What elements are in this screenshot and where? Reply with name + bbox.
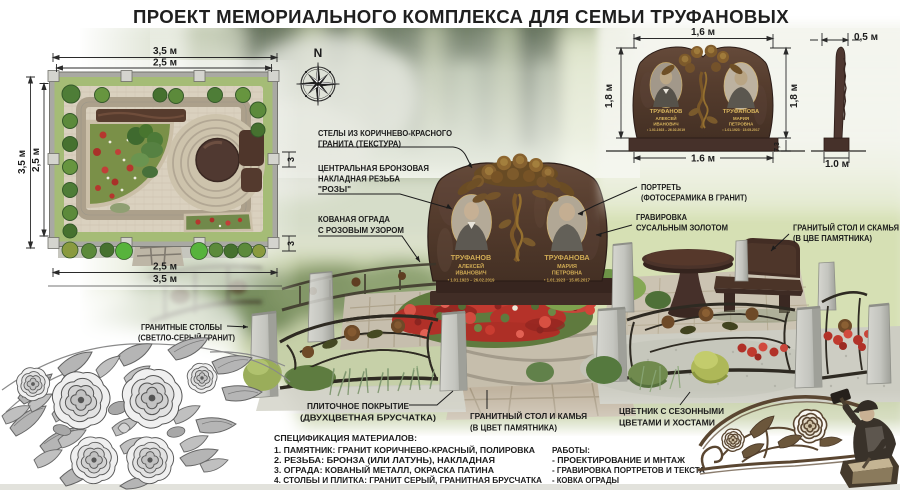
svg-text:ЦВЕТАМИ И ХОСТАМИ: ЦВЕТАМИ И ХОСТАМИ <box>619 418 715 428</box>
svg-text:СТЕЛЫ ИЗ КОРИЧНЕВО-КРАСНОГО: СТЕЛЫ ИЗ КОРИЧНЕВО-КРАСНОГО <box>318 128 452 138</box>
svg-text:3,5 м: 3,5 м <box>17 150 28 174</box>
svg-text:ГРАНИТА (ТЕКСТУРА): ГРАНИТА (ТЕКСТУРА) <box>318 139 401 149</box>
svg-text:- ГРАВИРОВКА ПОРТРЕТОВ И ТЕКСТ: - ГРАВИРОВКА ПОРТРЕТОВ И ТЕКСТА <box>552 465 705 475</box>
svg-text:3,5 м: 3,5 м <box>153 274 177 285</box>
svg-text:3: 3 <box>286 241 296 246</box>
svg-text:1.0 м: 1.0 м <box>825 159 849 170</box>
svg-text:(ДВУХЦВЕТНАЯ БРУСЧАТКА): (ДВУХЦВЕТНАЯ БРУСЧАТКА) <box>300 413 436 423</box>
svg-text:• 1.01.1923 – 26.02.2019: • 1.01.1923 – 26.02.2019 <box>647 128 685 132</box>
svg-text:- ПРОЕКТИРОВАНИЕ И МНТАЖ: - ПРОЕКТИРОВАНИЕ И МНТАЖ <box>552 455 685 465</box>
svg-text:ТРУФАНОВ: ТРУФАНОВ <box>650 109 683 115</box>
svg-text:- КОВКА ОГРАДЫ: - КОВКА ОГРАДЫ <box>552 475 619 485</box>
svg-text:СУСАЛЬНЫМ ЗОЛОТОМ: СУСАЛЬНЫМ ЗОЛОТОМ <box>636 223 728 233</box>
svg-text:• 1.01.1923 · 15.05.2017: • 1.01.1923 · 15.05.2017 <box>722 128 759 132</box>
svg-text:ТРУФАНОВА: ТРУФАНОВА <box>544 253 589 262</box>
svg-text:С РОЗОВЫМ УЗОРОМ: С РОЗОВЫМ УЗОРОМ <box>318 225 404 235</box>
svg-text:РАБОТЫ:: РАБОТЫ: <box>552 445 590 455</box>
svg-text:НАКЛАДНАЯ РЕЗЬБА: НАКЛАДНАЯ РЕЗЬБА <box>318 174 400 184</box>
svg-text:ПЕТРОВНА: ПЕТРОВНА <box>729 122 754 127</box>
svg-text:СПЕЦИФИКАЦИЯ МАТЕРИАЛОВ:: СПЕЦИФИКАЦИЯ МАТЕРИАЛОВ: <box>274 433 417 443</box>
svg-text:3. ОГРАДА: КОВАНЫЙ МЕТАЛЛ, ОКР: 3. ОГРАДА: КОВАНЫЙ МЕТАЛЛ, ОКРАСКА ПАТИН… <box>274 464 494 475</box>
svg-text:ПРОЕКТ МЕМОРИАЛЬНОГО КОМПЛЕКСА: ПРОЕКТ МЕМОРИАЛЬНОГО КОМПЛЕКСА ДЛЯ СЕМЬИ… <box>133 6 789 27</box>
svg-text:ГРАНИТНЫЕ СТОЛБЫ: ГРАНИТНЫЕ СТОЛБЫ <box>141 322 222 332</box>
svg-text:ЦВЕТНИК С СЕЗОННЫМИ: ЦВЕТНИК С СЕЗОННЫМИ <box>619 406 724 416</box>
svg-text:0,5 м: 0,5 м <box>854 32 878 43</box>
svg-text:2,5 м: 2,5 м <box>153 58 177 69</box>
svg-text:ИВАНОВИЧ: ИВАНОВИЧ <box>455 271 486 277</box>
svg-text:2,5 м: 2,5 м <box>153 262 177 273</box>
svg-text:(В ЦВЕ ПАМЯТНИКА): (В ЦВЕ ПАМЯТНИКА) <box>793 233 872 243</box>
svg-text:• 1.01.1923 · 15.05.2017: • 1.01.1923 · 15.05.2017 <box>544 278 591 283</box>
svg-text:7,3: 7,3 <box>774 142 781 152</box>
svg-text:1.6 м: 1.6 м <box>691 154 715 165</box>
svg-text:ПЕТРОВНА: ПЕТРОВНА <box>552 271 582 277</box>
svg-text:ГРАВИРОВКА: ГРАВИРОВКА <box>636 212 687 222</box>
svg-text:ПОРТРЕТЬ: ПОРТРЕТЬ <box>641 182 681 192</box>
svg-text:ИВАНОВИЧ: ИВАНОВИЧ <box>653 122 678 127</box>
svg-text:1. ПАМЯТНИК: ГРАНИТ КОРИЧНЕВО-: 1. ПАМЯТНИК: ГРАНИТ КОРИЧНЕВО-КРАСНЫЙ, П… <box>274 444 535 455</box>
svg-text:МАРИЯ: МАРИЯ <box>733 116 749 121</box>
svg-text:АЛЕКСЕЙ: АЛЕКСЕЙ <box>458 262 484 270</box>
svg-text:ГРАНИТЫЙ СТОЛ И СКАМЬЯ: ГРАНИТЫЙ СТОЛ И СКАМЬЯ <box>793 222 899 233</box>
svg-text:4. СТОЛБЫ И ПЛИТКА: ГРАНИТ СЕР: 4. СТОЛБЫ И ПЛИТКА: ГРАНИТ СЕРЫЙ, ГРАНИТ… <box>274 474 542 485</box>
svg-text:2,5 м: 2,5 м <box>31 148 42 172</box>
svg-text:1,8 м: 1,8 м <box>604 84 615 108</box>
svg-text:"РОЗЫ": "РОЗЫ" <box>318 184 351 194</box>
svg-text:1,8 м: 1,8 м <box>789 84 800 108</box>
svg-text:3: 3 <box>286 157 296 162</box>
svg-text:КОВАНАЯ ОГРАДА: КОВАНАЯ ОГРАДА <box>318 214 390 224</box>
svg-text:ТРУФАНОВА: ТРУФАНОВА <box>723 109 760 115</box>
svg-text:2. РЕЗЬБА: БРОНЗА (ИЛИ ЛАТУНЬ): 2. РЕЗЬБА: БРОНЗА (ИЛИ ЛАТУНЬ), НАКЛАДНА… <box>274 455 495 465</box>
svg-text:ГРАНИТНЫЙ СТОЛ И КАМЬЯ: ГРАНИТНЫЙ СТОЛ И КАМЬЯ <box>470 410 587 421</box>
svg-text:(ФОТОСЕРАМИКА В ГРАНИТ): (ФОТОСЕРАМИКА В ГРАНИТ) <box>641 193 747 203</box>
svg-text:1,6 м: 1,6 м <box>691 27 715 38</box>
svg-text:• 1.01.1923 – 26.02.2019: • 1.01.1923 – 26.02.2019 <box>448 278 496 283</box>
svg-text:АЛЕКСЕЙ: АЛЕКСЕЙ <box>655 116 676 121</box>
svg-text:ТРУФАНОВ: ТРУФАНОВ <box>451 253 491 262</box>
svg-text:N: N <box>314 46 323 60</box>
svg-text:ЦЕНТРАЛЬНАЯ БРОНЗОВАЯ: ЦЕНТРАЛЬНАЯ БРОНЗОВАЯ <box>318 163 429 173</box>
svg-text:МАРИЯ: МАРИЯ <box>557 264 577 270</box>
svg-text:3,5 м: 3,5 м <box>153 46 177 57</box>
svg-text:(В ЦВЕТ ПАМЯТНИКА): (В ЦВЕТ ПАМЯТНИКА) <box>470 423 557 433</box>
svg-text:ПЛИТОЧНОЕ ПОКРЫТИЕ: ПЛИТОЧНОЕ ПОКРЫТИЕ <box>307 401 409 411</box>
